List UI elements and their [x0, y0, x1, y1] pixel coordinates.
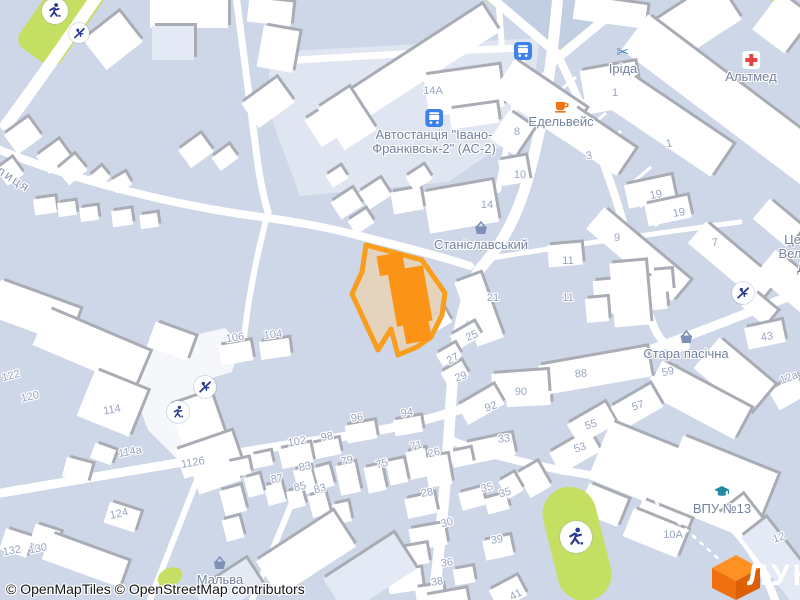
poi-edelveis: Едельвейс [528, 96, 593, 129]
building [345, 421, 378, 444]
building [33, 308, 150, 388]
house-number: 1 [612, 87, 618, 99]
slide-icon [197, 379, 213, 395]
building [264, 482, 287, 506]
runner-icon [45, 1, 64, 20]
graduation-cap-icon [713, 483, 731, 501]
building [651, 269, 673, 293]
building [221, 516, 244, 542]
building [83, 12, 143, 70]
building [386, 458, 409, 485]
house-number: 83 [298, 460, 312, 474]
house-number: 35 [480, 481, 494, 495]
poi-label-text: Іріда [609, 62, 638, 76]
house-number: 28 [420, 486, 434, 500]
slide-circle [732, 282, 754, 304]
poi-stanislavskyi: Станіславський [434, 219, 528, 252]
house-number: 106 [225, 331, 245, 345]
house-number: 7 [711, 237, 718, 249]
shopping-basket-icon [211, 554, 229, 572]
poi-bus-stop-north [514, 42, 532, 61]
building [307, 492, 330, 518]
bus-icon [425, 109, 443, 127]
building [538, 347, 652, 396]
building [609, 261, 650, 328]
bus-icon [514, 42, 532, 60]
building [257, 25, 300, 73]
house-number: 79 [340, 454, 354, 468]
building [79, 206, 99, 222]
house-number: 85 [293, 480, 307, 494]
building [451, 448, 474, 468]
slide-icon [72, 26, 87, 41]
house-number: 88 [574, 367, 587, 380]
poi-label-text: Автостанція "Івано- [375, 128, 492, 142]
building [42, 533, 129, 587]
poi-label-text: Альтмед [725, 70, 776, 84]
house-number: 104 [263, 328, 283, 342]
shopping-basket-icon [472, 219, 490, 237]
house-number: 39 [490, 533, 504, 547]
poi-label-text: Церква [784, 233, 800, 247]
house-number: 59 [661, 365, 675, 379]
runner-icon [170, 404, 186, 420]
building [585, 297, 609, 323]
house-number: 14А [423, 85, 443, 97]
house-number: 9 [614, 232, 620, 244]
building [211, 145, 238, 171]
house-number: 11 [562, 255, 573, 267]
poi-vpu-13: ВПУ №13 [693, 483, 751, 516]
poi-altmed: Альтмед [725, 51, 776, 84]
house-number: 98 [320, 430, 334, 444]
house-number: 36 [440, 556, 454, 570]
map-canvas[interactable]: ✂ [0, 0, 800, 600]
house-number: 38 [430, 575, 444, 589]
building [111, 209, 133, 228]
house-number: 10 [514, 169, 526, 181]
slide-circle [194, 376, 216, 398]
house-number: 8 [514, 126, 520, 138]
building [33, 197, 57, 216]
building [752, 0, 800, 53]
building [152, 26, 194, 60]
poi-label-text: Франківськ-2" (АС-2) [372, 142, 496, 156]
building [244, 474, 265, 497]
building [219, 486, 247, 517]
house-number: 33 [497, 432, 510, 445]
house-number: 10А [663, 529, 683, 541]
runner-icon [564, 525, 588, 549]
house-number: 19 [672, 206, 686, 220]
house-number: 21 [487, 292, 499, 304]
runner-circle [42, 0, 68, 24]
map-attribution[interactable]: © OpenMapTiles © OpenStreetMap contribut… [6, 581, 305, 597]
highlighted-parcel[interactable] [352, 245, 445, 355]
runner-circle [560, 521, 592, 553]
coffee-cup-icon [552, 96, 570, 114]
scissors-icon [614, 43, 632, 61]
runner-circle [167, 401, 189, 423]
poi-stara-pasichna: Стара пасічна [643, 328, 728, 361]
building [178, 134, 214, 168]
building [247, 0, 293, 26]
poi-label-text: Стара пасічна [643, 347, 728, 361]
logo-text[interactable]: ЛУН [747, 559, 800, 593]
house-number: 94 [400, 406, 414, 420]
building [390, 188, 423, 215]
building [150, 0, 228, 28]
poi-irida: Іріда [609, 43, 638, 76]
building [139, 213, 159, 229]
house-number: 96 [350, 411, 364, 425]
poi-label-text: Едельвейс [528, 115, 593, 129]
building [453, 566, 475, 585]
shopping-basket-icon [677, 328, 695, 346]
slide-circle [69, 23, 89, 43]
poi-label-text: Станіславський [434, 238, 528, 252]
building [335, 462, 361, 496]
house-number: 71 [409, 439, 423, 453]
house-number: 11 [562, 292, 573, 304]
poi-label-text: Великого [778, 247, 800, 261]
house-number: 19 [649, 188, 663, 202]
medical-cross-icon [742, 51, 760, 69]
building [424, 454, 453, 488]
building [57, 201, 77, 217]
poi-bus-station: Автостанція "Івано-Франківськ-2" (АС-2) [372, 109, 496, 156]
house-number: 43 [760, 330, 774, 344]
poi-label-text: ВПУ №13 [693, 502, 751, 516]
building [90, 443, 116, 466]
poi-church: ЦеркваВеликогоДм [778, 233, 800, 275]
slide-icon [735, 285, 751, 301]
house-number: 14 [481, 199, 493, 211]
house-number: 87 [270, 472, 284, 486]
house-number: 90 [515, 386, 527, 398]
